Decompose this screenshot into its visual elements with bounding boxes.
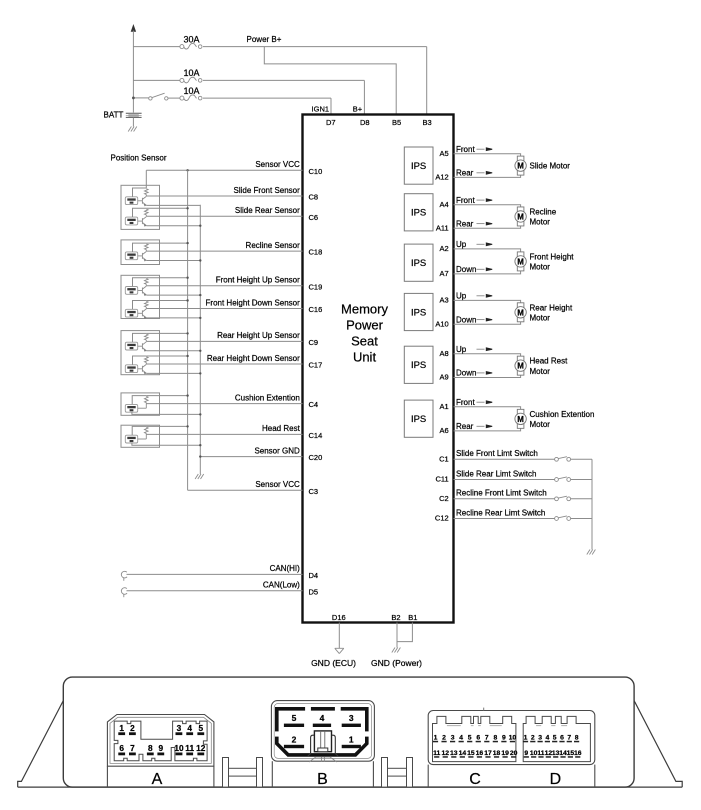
svg-text:IPS: IPS [411,360,426,371]
svg-text:C6: C6 [309,213,319,222]
svg-text:C17: C17 [309,361,323,370]
svg-text:Head Rest: Head Rest [530,357,569,366]
svg-text:Motor: Motor [530,218,551,227]
svg-text:A2: A2 [440,244,449,253]
svg-text:Slide Rear Limt Switch: Slide Rear Limt Switch [456,469,536,478]
svg-text:18: 18 [493,750,501,757]
svg-text:9: 9 [524,750,528,757]
svg-text:IGN1: IGN1 [312,104,330,113]
svg-text:2: 2 [531,734,535,741]
svg-text:IPS: IPS [411,208,426,219]
svg-text:Down: Down [456,315,476,324]
svg-text:Rear: Rear [456,169,474,178]
svg-text:D: D [550,771,562,788]
svg-text:5: 5 [198,723,203,733]
svg-text:A1: A1 [440,402,449,411]
svg-text:6: 6 [560,734,564,741]
svg-text:C: C [469,771,481,788]
svg-text:Rear: Rear [456,422,474,431]
svg-text:11: 11 [185,743,194,753]
svg-text:Memory: Memory [341,302,388,317]
svg-text:D4: D4 [309,571,319,580]
svg-text:1: 1 [434,734,438,741]
svg-text:Power B+: Power B+ [247,35,282,44]
svg-text:Up: Up [456,292,467,301]
svg-text:Front Height Up Sensor: Front Height Up Sensor [216,276,300,285]
svg-text:19: 19 [501,750,509,757]
svg-text:10A: 10A [183,68,199,78]
svg-text:CAN(Low): CAN(Low) [263,581,300,590]
svg-text:D8: D8 [360,118,370,127]
svg-text:Sensor VCC: Sensor VCC [255,480,300,489]
svg-text:15: 15 [467,750,475,757]
svg-text:C11: C11 [435,475,448,484]
svg-text:14: 14 [459,750,467,757]
svg-text:11: 11 [433,750,440,757]
svg-text:Head Rest: Head Rest [262,424,301,433]
svg-text:A: A [152,771,163,788]
svg-text:C8: C8 [309,193,319,202]
svg-text:16: 16 [476,750,484,757]
svg-text:1: 1 [524,734,528,741]
svg-text:IPS: IPS [411,414,426,425]
svg-text:3: 3 [538,734,542,741]
svg-text:B5: B5 [392,118,401,127]
svg-text:M: M [517,415,524,424]
svg-text:C3: C3 [309,487,319,496]
svg-text:20: 20 [510,750,518,757]
svg-text:M: M [517,212,524,221]
svg-text:17: 17 [484,750,492,757]
svg-text:Rear: Rear [456,219,474,228]
svg-text:7: 7 [485,734,489,741]
svg-text:A11: A11 [436,223,449,232]
svg-text:B1: B1 [408,613,417,622]
svg-text:8: 8 [148,743,153,753]
svg-text:Rear Height Up Sensor: Rear Height Up Sensor [217,331,300,340]
svg-text:Up: Up [456,240,467,249]
svg-text:7: 7 [567,734,571,741]
svg-text:Motor: Motor [530,420,551,429]
svg-text:C1: C1 [439,455,449,464]
svg-text:A3: A3 [440,296,449,305]
svg-text:6: 6 [476,734,480,741]
svg-text:2: 2 [442,734,446,741]
svg-text:C9: C9 [309,338,319,347]
svg-text:B2: B2 [391,613,400,622]
svg-text:9: 9 [158,743,163,753]
svg-text:D7: D7 [326,118,336,127]
svg-text:8: 8 [493,734,497,741]
svg-text:Slide Motor: Slide Motor [530,161,571,170]
svg-text:4: 4 [459,734,463,741]
svg-text:Up: Up [456,345,467,354]
svg-text:C14: C14 [309,431,323,440]
svg-text:Cushion Extention: Cushion Extention [530,410,595,419]
svg-text:3: 3 [349,713,354,723]
svg-text:A4: A4 [440,200,449,209]
svg-text:A7: A7 [440,269,449,278]
svg-text:C20: C20 [309,453,323,462]
svg-text:4: 4 [320,713,325,723]
svg-text:C2: C2 [439,494,449,503]
svg-text:5: 5 [553,734,557,741]
svg-text:IPS: IPS [411,161,426,172]
svg-text:5: 5 [292,713,297,723]
svg-text:Motor: Motor [530,367,551,376]
svg-text:D16: D16 [332,613,346,622]
svg-text:Recline Front Limt Switch: Recline Front Limt Switch [456,489,547,498]
svg-text:13: 13 [450,750,458,757]
svg-text:Front: Front [456,398,475,407]
svg-text:12: 12 [441,750,449,757]
svg-text:Motor: Motor [530,314,551,323]
svg-text:Recline Rear Limt Switch: Recline Rear Limt Switch [456,508,545,517]
svg-text:Down: Down [456,265,476,274]
svg-text:C18: C18 [309,248,323,257]
svg-text:C10: C10 [309,167,323,176]
svg-text:1: 1 [119,723,124,733]
svg-text:Seat: Seat [351,334,378,349]
svg-text:A6: A6 [440,426,449,435]
svg-text:12: 12 [196,743,206,753]
svg-text:1: 1 [349,734,354,744]
svg-text:Slide Rear Sensor: Slide Rear Sensor [235,206,300,215]
svg-text:Motor: Motor [530,263,551,272]
svg-text:Power: Power [346,318,384,333]
svg-text:Position Sensor: Position Sensor [111,154,167,163]
svg-text:Front Height Down Sensor: Front Height Down Sensor [206,298,301,307]
svg-text:Recline Sensor: Recline Sensor [246,241,301,250]
svg-text:Slide Front Limt Switch: Slide Front Limt Switch [456,449,538,458]
svg-text:GND (Power): GND (Power) [371,658,422,668]
svg-text:4: 4 [546,734,550,741]
svg-text:8: 8 [575,734,579,741]
svg-text:2: 2 [130,723,135,733]
svg-text:2: 2 [292,734,297,744]
svg-text:A12: A12 [435,173,448,182]
svg-text:M: M [517,257,524,266]
svg-text:Front: Front [456,196,475,205]
svg-text:Down: Down [456,369,476,378]
svg-text:Unit: Unit [353,350,377,365]
svg-text:Sensor GND: Sensor GND [254,446,300,455]
svg-text:IPS: IPS [411,307,426,318]
svg-text:Recline: Recline [530,207,557,216]
svg-text:CAN(HI): CAN(HI) [270,564,301,573]
svg-text:A8: A8 [440,349,449,358]
svg-text:3: 3 [451,734,455,741]
svg-text:16: 16 [574,750,582,757]
svg-text:GND (ECU): GND (ECU) [311,658,356,668]
svg-text:B+: B+ [353,104,363,113]
svg-text:Sensor VCC: Sensor VCC [255,160,300,169]
svg-text:C4: C4 [309,400,319,409]
svg-text:9: 9 [502,734,506,741]
svg-text:Cushion Extention: Cushion Extention [235,393,300,402]
svg-text:M: M [517,362,524,371]
svg-text:Front Height: Front Height [530,252,575,261]
svg-text:C12: C12 [435,514,449,523]
svg-text:10: 10 [174,743,184,753]
svg-text:Rear Height Down Sensor: Rear Height Down Sensor [207,354,300,363]
svg-text:A5: A5 [440,149,449,158]
svg-text:M: M [517,308,524,317]
svg-text:D5: D5 [309,587,319,596]
svg-text:3: 3 [177,723,182,733]
svg-text:4: 4 [187,723,192,733]
svg-text:B: B [317,771,328,788]
svg-text:A10: A10 [435,319,448,328]
svg-text:7: 7 [130,743,135,753]
svg-text:C16: C16 [309,305,323,314]
svg-text:Slide Front Sensor: Slide Front Sensor [234,186,301,195]
svg-text:10A: 10A [183,86,199,96]
svg-text:Front: Front [456,145,475,154]
svg-text:10: 10 [509,734,517,741]
svg-text:B3: B3 [423,118,432,127]
svg-text:30A: 30A [183,34,199,44]
svg-text:A9: A9 [440,373,449,382]
svg-text:5: 5 [468,734,472,741]
svg-text:6: 6 [119,743,124,753]
svg-text:Rear Height: Rear Height [530,303,573,312]
svg-text:C19: C19 [309,282,323,291]
svg-text:IPS: IPS [411,258,426,269]
svg-text:M: M [517,162,524,171]
svg-text:BATT: BATT [104,111,124,120]
